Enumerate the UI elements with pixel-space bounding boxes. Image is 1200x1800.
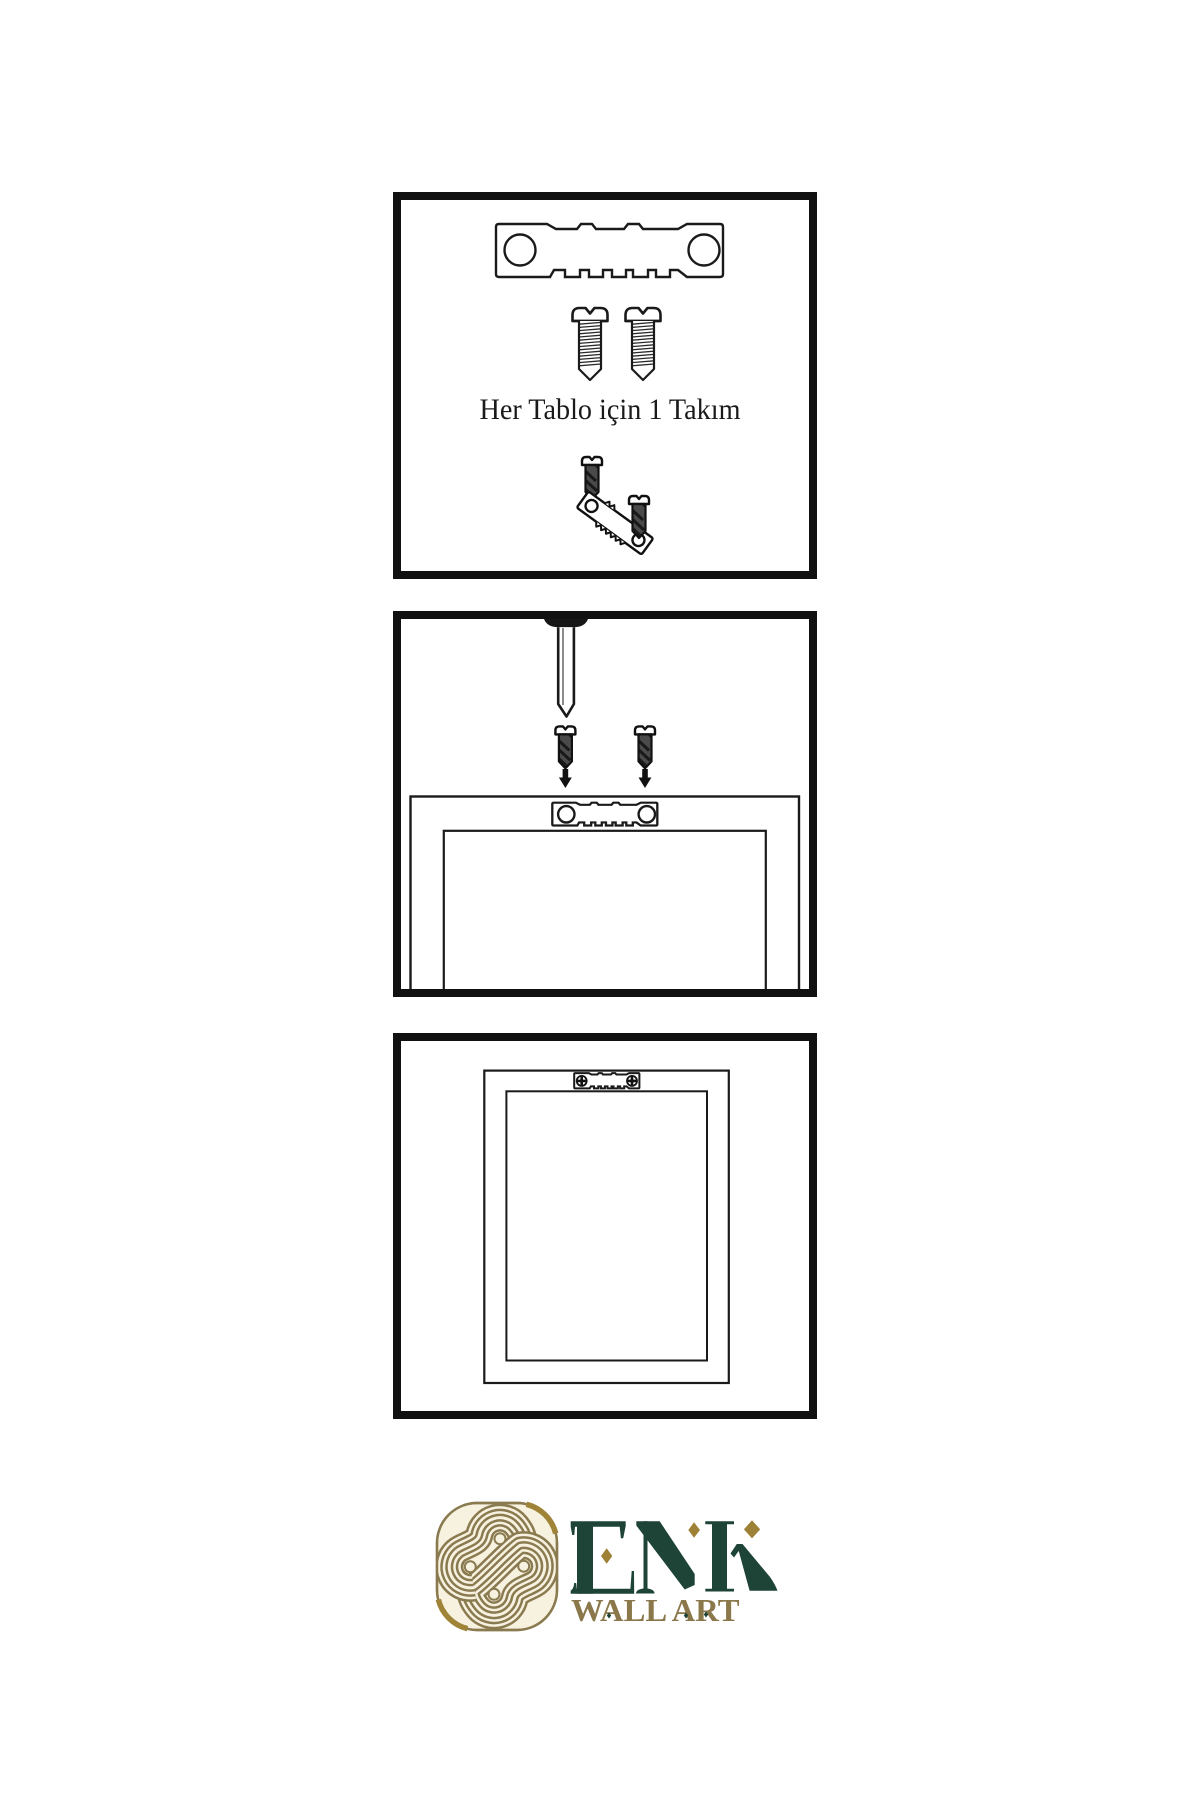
svg-text:Her Tablo için 1 Takım: Her Tablo için 1 Takım	[480, 393, 741, 426]
svg-text:WALL ART: WALL ART	[571, 1593, 740, 1628]
